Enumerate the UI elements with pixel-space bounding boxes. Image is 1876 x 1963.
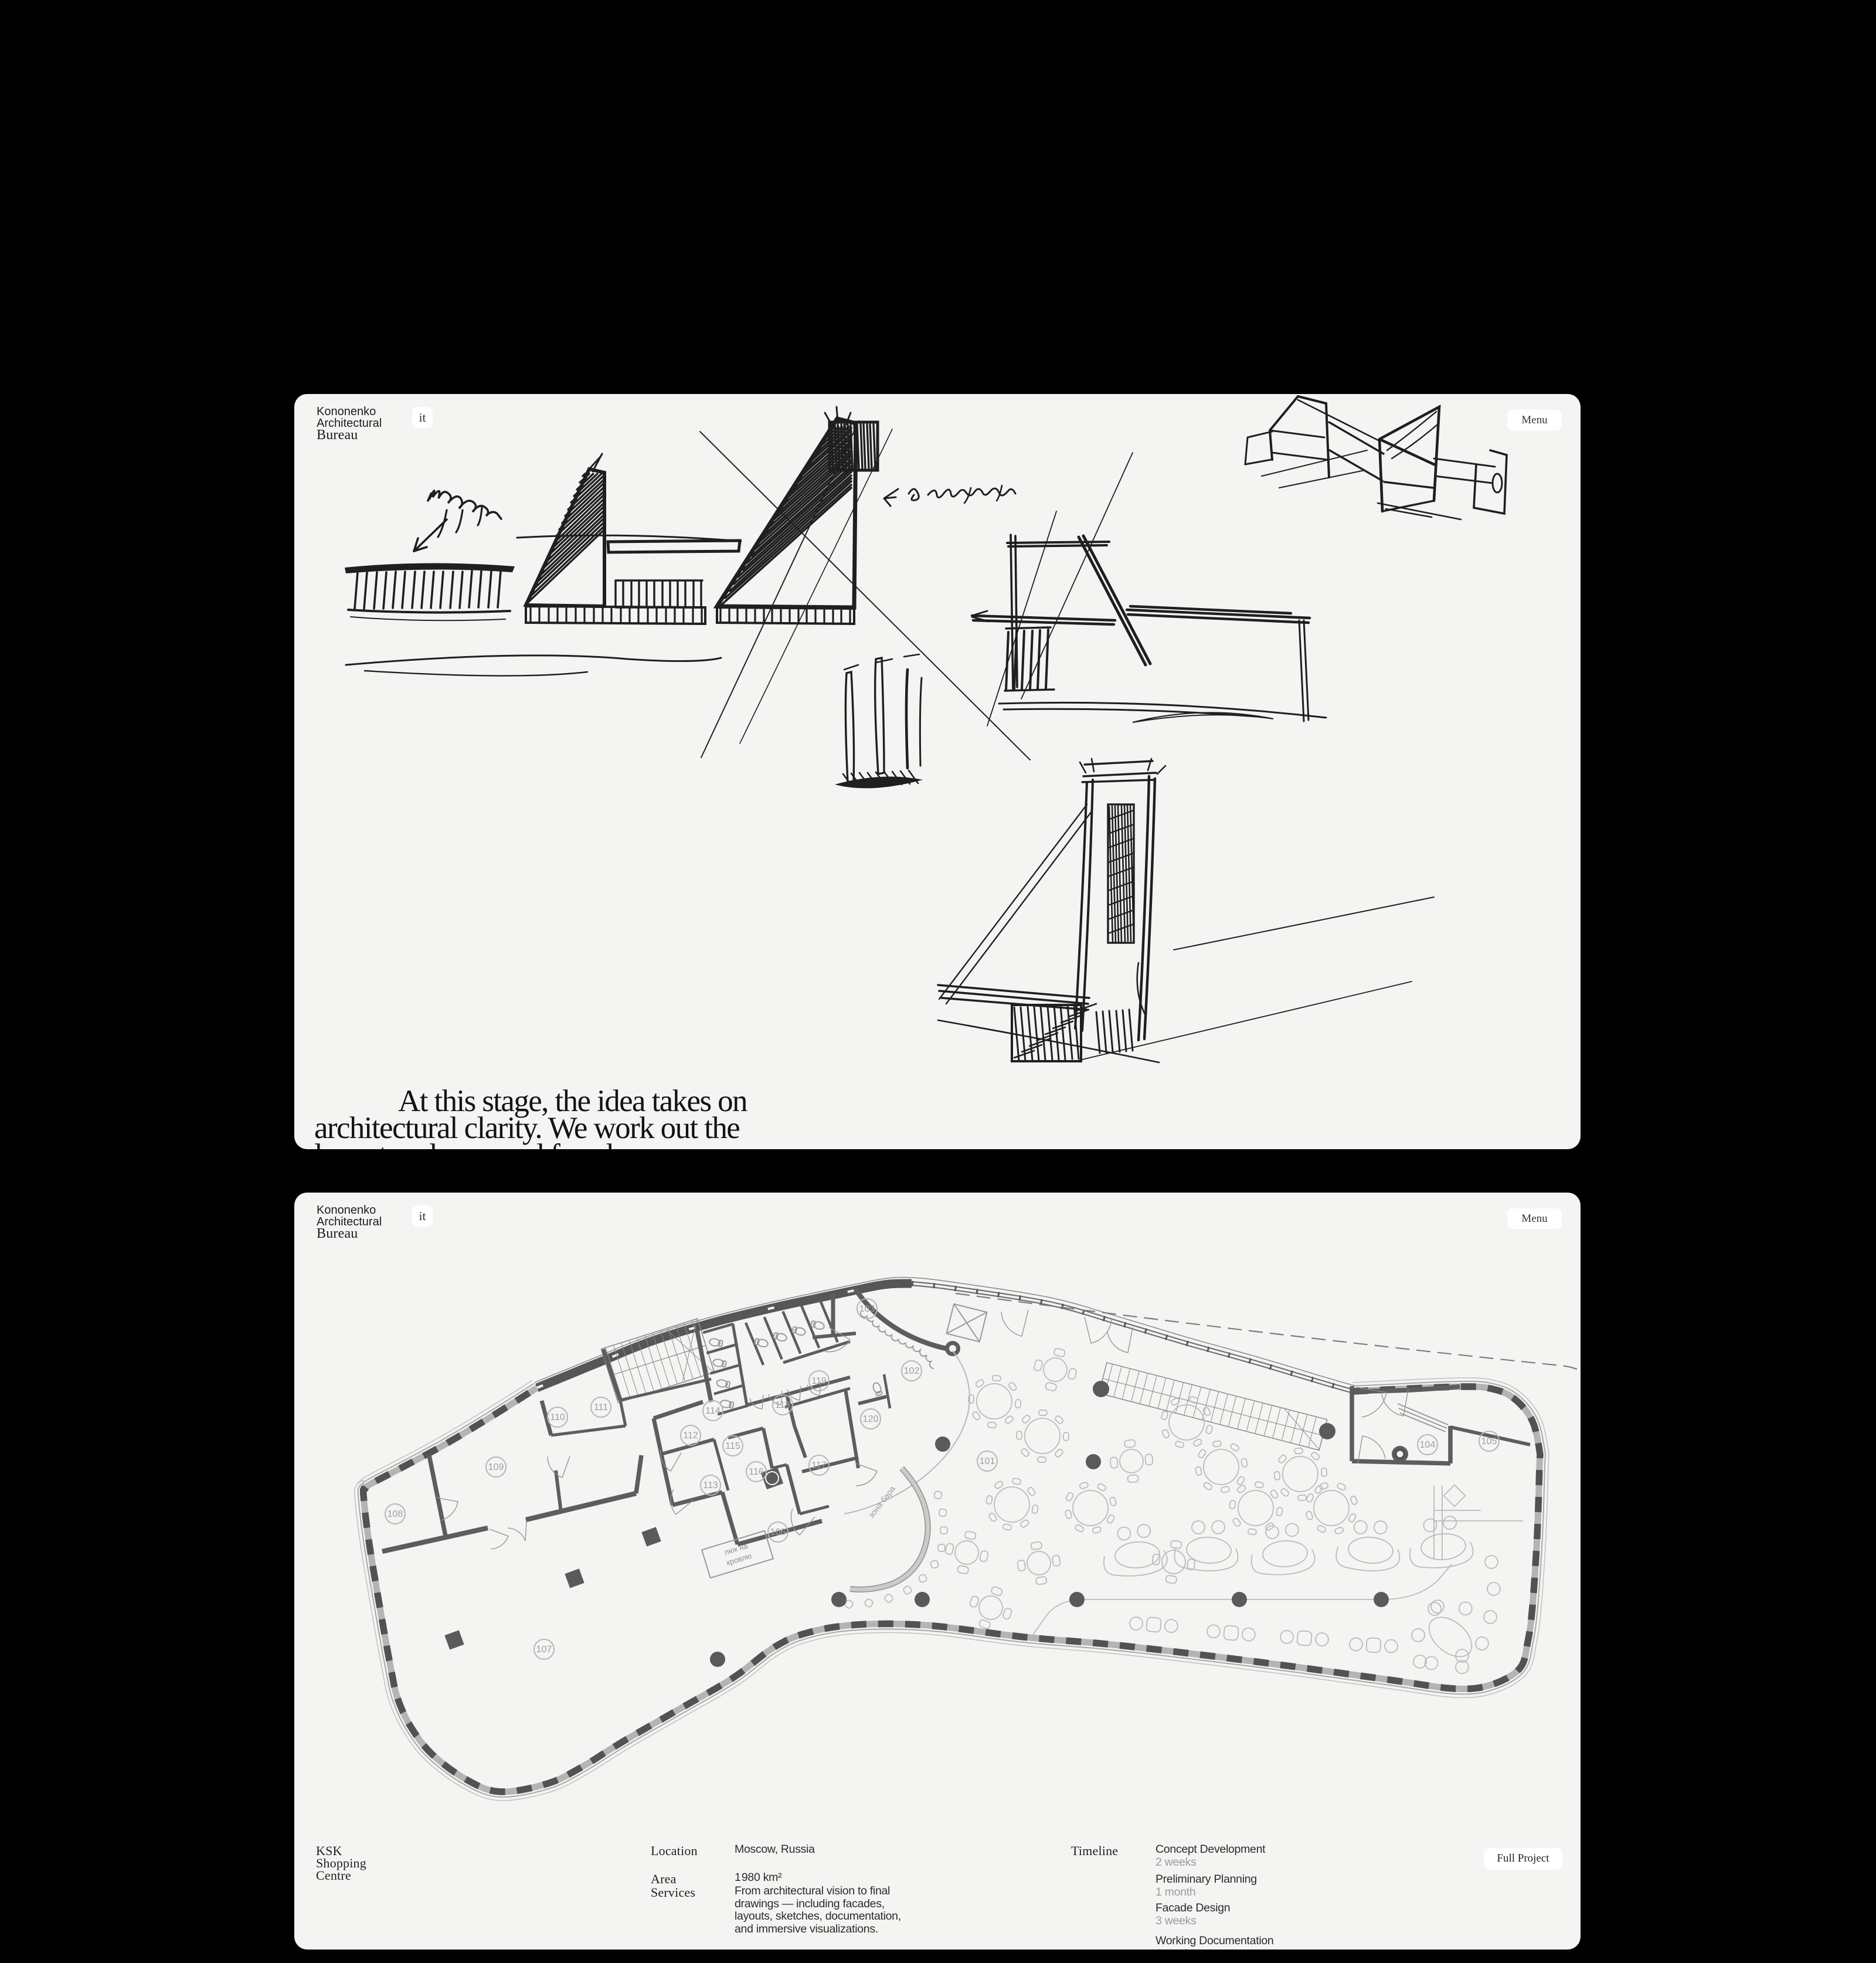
svg-text:112: 112	[683, 1431, 698, 1441]
svg-text:111: 111	[594, 1402, 608, 1412]
svg-text:104: 104	[1420, 1440, 1436, 1450]
svg-text:115: 115	[725, 1441, 740, 1451]
svg-text:109: 109	[488, 1462, 504, 1472]
svg-text:зона бара: зона бара	[866, 1484, 897, 1520]
svg-text:106: 106	[770, 1527, 786, 1537]
svg-text:119: 119	[811, 1376, 827, 1386]
svg-text:103: 103	[859, 1304, 875, 1314]
svg-text:110: 110	[550, 1412, 565, 1422]
svg-text:114: 114	[705, 1406, 721, 1416]
svg-text:107: 107	[536, 1645, 552, 1655]
svg-text:120: 120	[863, 1414, 879, 1424]
svg-text:118: 118	[775, 1400, 790, 1410]
svg-text:108: 108	[388, 1509, 403, 1519]
svg-text:117: 117	[811, 1461, 827, 1470]
svg-text:113: 113	[703, 1480, 718, 1490]
svg-text:116: 116	[749, 1467, 764, 1477]
svg-text:105: 105	[1481, 1436, 1497, 1446]
svg-text:102: 102	[904, 1366, 920, 1376]
svg-text:101: 101	[980, 1456, 995, 1466]
